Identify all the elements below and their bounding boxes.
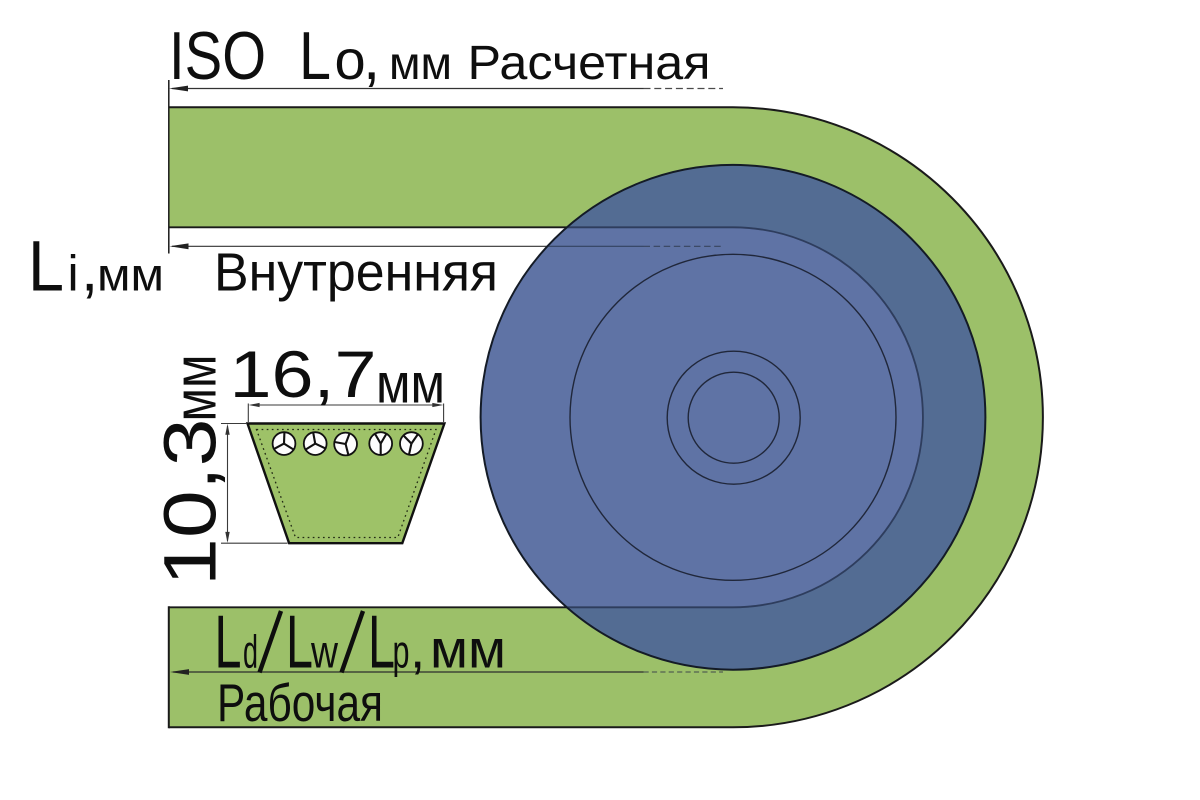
svg-text:мм: мм <box>430 620 506 680</box>
svg-text:d: d <box>243 626 258 678</box>
svg-text:10,3: 10,3 <box>149 419 232 587</box>
svg-text:p: p <box>393 626 410 678</box>
svg-text:,: , <box>363 24 380 93</box>
svg-text:o: o <box>335 28 366 91</box>
svg-text:мм: мм <box>389 37 452 89</box>
svg-text:,: , <box>81 236 98 305</box>
svg-text:мм: мм <box>97 249 164 301</box>
svg-text:16,7: 16,7 <box>230 337 377 411</box>
svg-text:L: L <box>28 228 64 307</box>
svg-text:Расчетная: Расчетная <box>468 37 711 90</box>
svg-text:L: L <box>368 600 395 684</box>
svg-text:L: L <box>299 18 331 94</box>
svg-text:i: i <box>68 246 79 302</box>
svg-text:w: w <box>310 626 338 678</box>
svg-text:мм: мм <box>162 355 229 422</box>
svg-text:,: , <box>410 618 425 680</box>
svg-text:мм: мм <box>376 352 445 415</box>
svg-text:Рабочая: Рабочая <box>217 674 383 733</box>
svg-text:L: L <box>286 600 313 684</box>
svg-text:Внутренняя: Внутренняя <box>214 244 498 303</box>
svg-text:ISO: ISO <box>169 18 266 94</box>
svg-text:L: L <box>215 600 242 684</box>
